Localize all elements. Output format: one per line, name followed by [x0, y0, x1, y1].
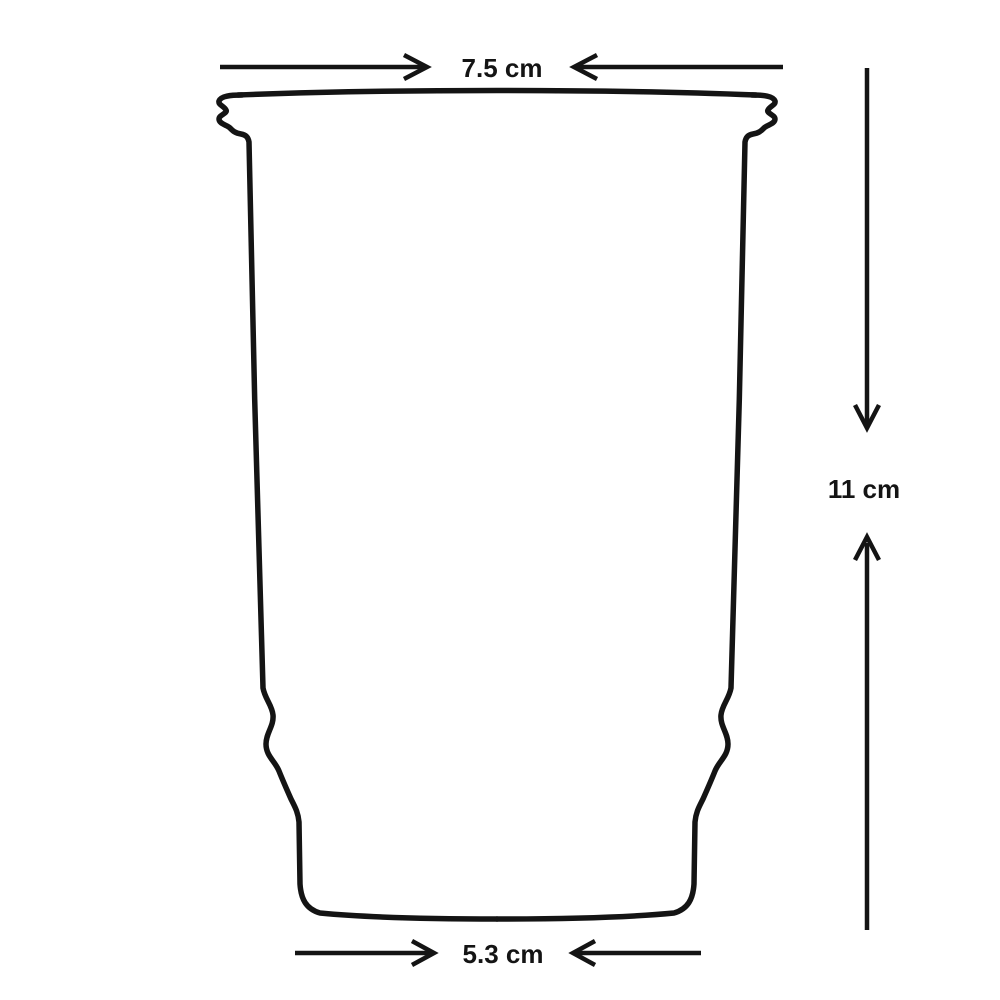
height-label: 11 cm [828, 474, 900, 504]
cup-dimension-diagram: 7.5 cm 11 cm 5.3 cm [0, 0, 1000, 1000]
bottom-width-label: 5.3 cm [463, 939, 544, 969]
dimension-arrows [220, 55, 879, 965]
diagram-canvas: 7.5 cm 11 cm 5.3 cm [0, 0, 1000, 1000]
top-width-arrow-right [574, 55, 783, 79]
top-width-arrow-left [220, 55, 427, 79]
height-arrow-down [855, 68, 879, 428]
cup-outline [219, 91, 775, 920]
cup-outline-right-half [497, 95, 775, 919]
cup-outline-left-half [219, 95, 497, 919]
bottom-width-arrow-right [573, 941, 701, 965]
bottom-width-arrow-left [295, 941, 434, 965]
top-width-label: 7.5 cm [462, 53, 543, 83]
cup-rim-line [238, 91, 756, 96]
height-arrow-up [855, 537, 879, 930]
